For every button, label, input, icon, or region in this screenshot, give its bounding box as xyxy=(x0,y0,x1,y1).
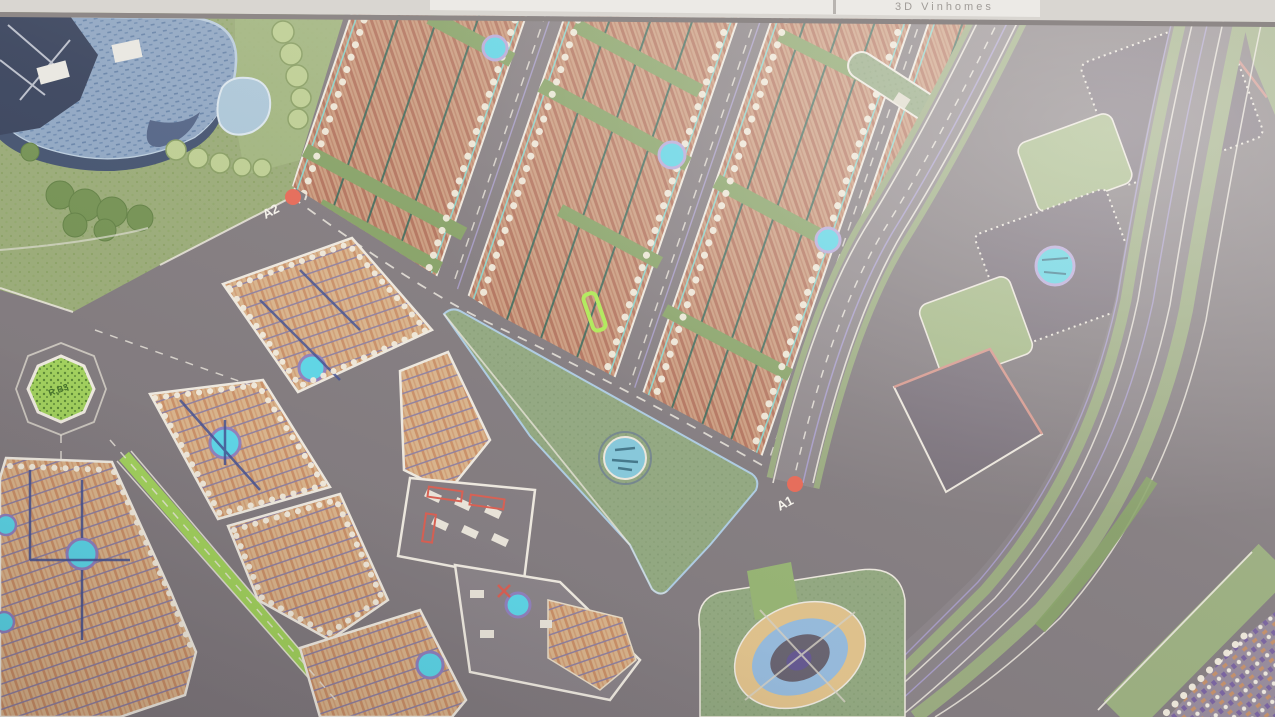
svg-text:3D Vinhomes: 3D Vinhomes xyxy=(895,1,994,13)
